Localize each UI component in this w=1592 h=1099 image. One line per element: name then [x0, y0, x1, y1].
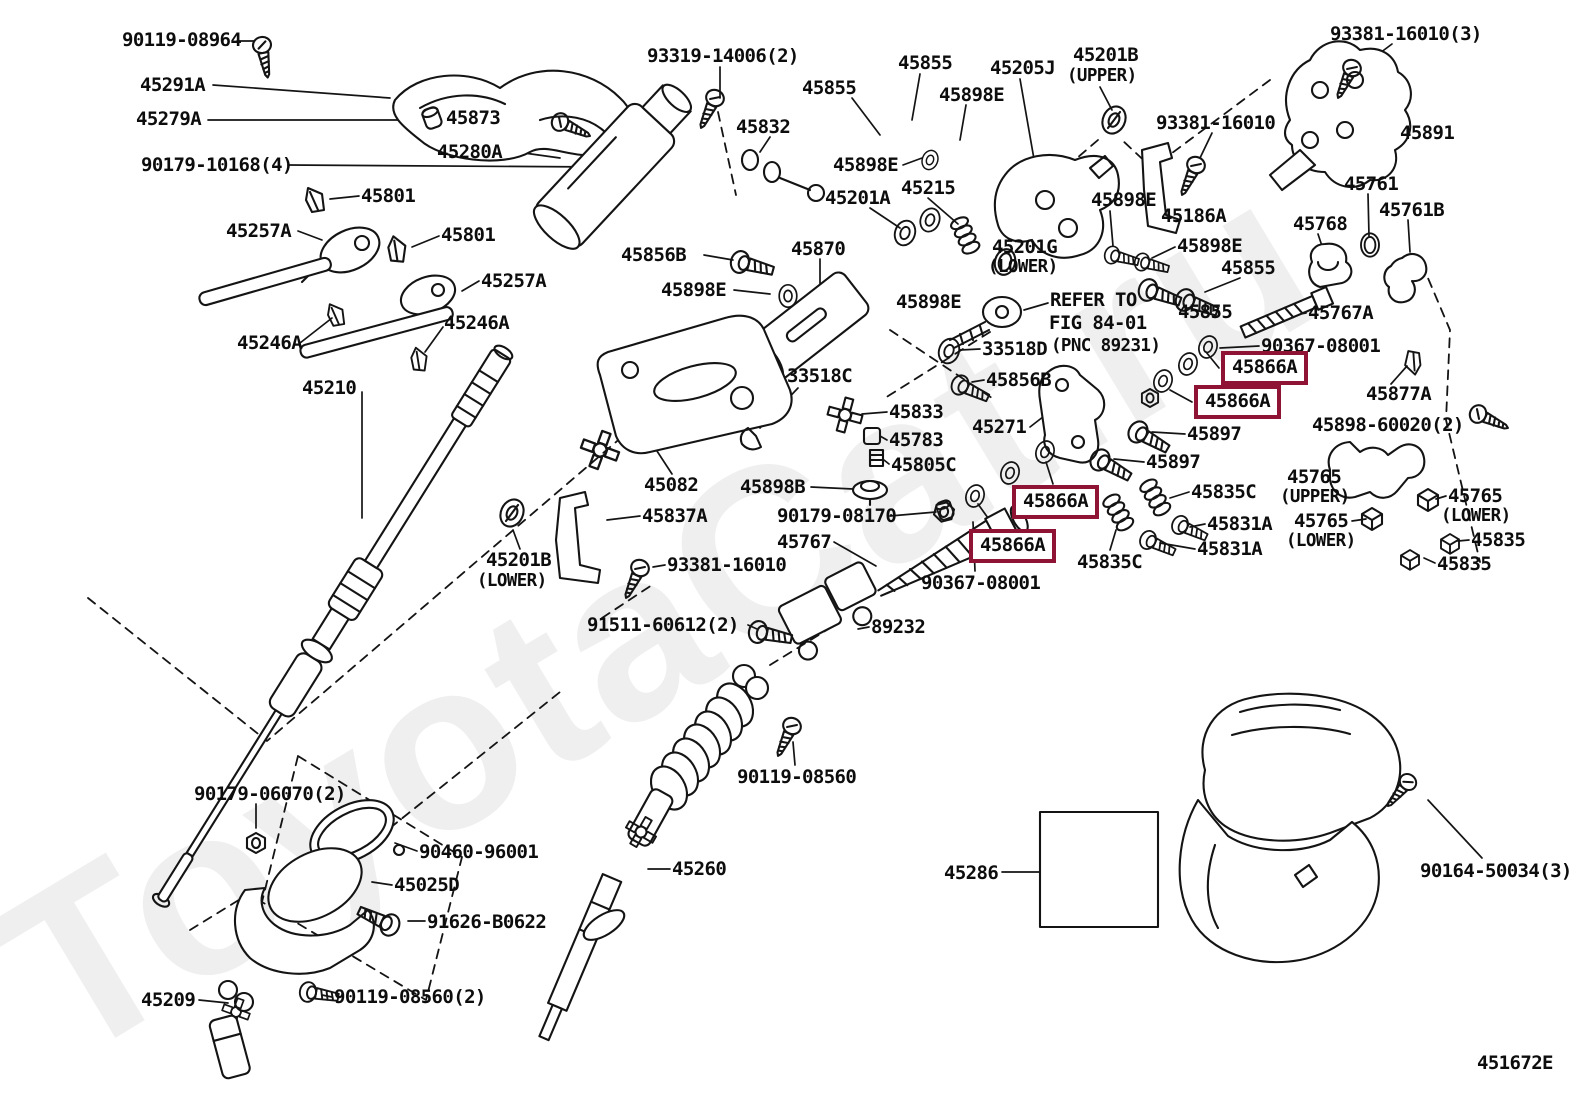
part-label: 45805C [891, 455, 956, 476]
part-label: 45765 [1448, 486, 1502, 507]
part-label: 45201B [486, 550, 551, 571]
part-label: 90179-06070(2) [194, 784, 346, 805]
part-label: 45257A [481, 271, 546, 292]
part-label: 45831A [1207, 514, 1272, 535]
cushion-hook-drawing [1384, 254, 1426, 302]
part-label: 45761 [1344, 174, 1398, 195]
part-label: 45855 [1221, 258, 1275, 279]
part-label: (LOWER) [988, 257, 1058, 278]
part-label: 89232 [871, 617, 925, 638]
knuckle-bracket-drawing [1270, 41, 1411, 190]
part-label: 45783 [889, 430, 943, 451]
sensor-drawing [775, 561, 891, 663]
part-label: 45855 [802, 78, 856, 99]
part-label: 45870 [791, 239, 845, 260]
part-label: 45286 [944, 863, 998, 884]
column-housing-drawing [576, 316, 792, 474]
dust-seal-drawing [853, 481, 887, 505]
part-label: 45856B [621, 245, 686, 266]
part-label: 45205J [990, 58, 1055, 79]
part-label: 45257A [226, 221, 291, 242]
part-label: 45835C [1191, 482, 1256, 503]
part-label: 45246A [444, 313, 509, 334]
parts-diagram-page: ToyotaCat.ru [0, 0, 1592, 1099]
part-label: 45280A [437, 142, 502, 163]
part-label: 45833 [889, 402, 943, 423]
part-label: 90179-08170 [777, 506, 896, 527]
part-label: 90119-08964 [122, 30, 241, 51]
part-label: 45856B [986, 370, 1051, 391]
part-label: 45898-60020(2) [1312, 415, 1464, 436]
part-label: 45279A [136, 109, 201, 130]
part-label-highlighted: 45866A [1221, 351, 1308, 385]
part-label: 45201G [992, 237, 1057, 258]
part-label-highlighted: 45866A [1012, 485, 1099, 519]
part-label: 45082 [644, 475, 698, 496]
part-label: 45768 [1293, 214, 1347, 235]
cushion-cup-drawing [1309, 244, 1351, 287]
part-label: 45832 [736, 117, 790, 138]
part-label: 45837A [642, 506, 707, 527]
upper-seal-drawing [1098, 103, 1130, 138]
part-label: 45835 [1471, 530, 1525, 551]
part-label: 93381-16010 [1156, 113, 1275, 134]
part-label: 45855 [898, 53, 952, 74]
part-label: 45801 [441, 225, 495, 246]
bush-drawing [870, 450, 883, 466]
part-label: 45831A [1197, 539, 1262, 560]
part-label: 45209 [141, 990, 195, 1011]
part-label: 45186A [1161, 206, 1226, 227]
part-label-highlighted: 45866A [1194, 385, 1281, 419]
part-label: 45765 [1287, 467, 1341, 488]
clip-33518C-drawing [741, 428, 761, 449]
part-label: 45835 [1437, 554, 1491, 575]
part-label: 45246A [237, 333, 302, 354]
part-label: 45877A [1366, 384, 1431, 405]
part-label: (LOWER) [1441, 506, 1511, 527]
part-label: 45898E [833, 155, 898, 176]
part-label: 45855 [1178, 302, 1232, 323]
part-label: 45201B [1073, 45, 1138, 66]
part-label: 91511-60612(2) [587, 615, 739, 636]
part-label: 33518D [982, 339, 1047, 360]
column-cover-drawing [1040, 694, 1400, 962]
part-label: (UPPER) [1280, 487, 1350, 508]
column-hole-cover-drawing [235, 787, 404, 974]
part-label: 45765 [1294, 511, 1348, 532]
intermediate-shaft-drawing [535, 665, 768, 1042]
part-label: 93381-16010 [667, 555, 786, 576]
part-label: 45210 [302, 378, 356, 399]
part-label: 90460-96001 [419, 842, 538, 863]
part-label: 91626-B0622 [427, 912, 546, 933]
part-label: 45898E [1091, 190, 1156, 211]
part-label: 45898B [740, 477, 805, 498]
part-label: 45898E [1177, 236, 1242, 257]
part-label: 93381-16010(3) [1330, 24, 1482, 45]
part-label: 45025D [394, 875, 459, 896]
part-label: 45891 [1400, 123, 1454, 144]
part-label: 45260 [672, 859, 726, 880]
part-label: 45767 [777, 532, 831, 553]
part-label: 45898E [939, 85, 1004, 106]
part-label: 45215 [901, 178, 955, 199]
part-label-highlighted: 45866A [969, 529, 1056, 563]
part-label: 45897 [1187, 424, 1241, 445]
part-label: 90367-08001 [921, 573, 1040, 594]
part-label: 90179-10168(4) [141, 155, 293, 176]
part-label: 33518C [787, 366, 852, 387]
part-label: (UPPER) [1067, 66, 1137, 87]
part-label: 45801 [361, 186, 415, 207]
part-label: 45898E [661, 280, 726, 301]
part-label: 90119-08560(2) [334, 987, 486, 1008]
part-label: 45898E [896, 292, 961, 313]
part-label: FIG 84-01 [1049, 313, 1147, 334]
part-label: (PNC 89231) [1051, 336, 1160, 357]
key-interlock-drawing [742, 150, 824, 201]
part-label: REFER TO [1050, 290, 1137, 311]
part-label: 45271 [972, 417, 1026, 438]
part-label: 45291A [140, 75, 205, 96]
part-label: 93319-14006(2) [647, 46, 799, 67]
part-label: 45835C [1077, 552, 1142, 573]
part-label: (LOWER) [477, 571, 547, 592]
part-label: 45761B [1379, 200, 1444, 221]
part-label: 45767A [1308, 303, 1373, 324]
part-label: 45873 [446, 108, 500, 129]
part-label: 45201A [825, 188, 890, 209]
part-label: 45897 [1146, 452, 1200, 473]
part-label: 90164-50034(3) [1420, 861, 1572, 882]
lower-joint-drawing [208, 981, 253, 1080]
part-label: 90119-08560 [737, 767, 856, 788]
diagram-code: 451672E [1477, 1053, 1553, 1074]
part-label: (LOWER) [1286, 531, 1356, 552]
